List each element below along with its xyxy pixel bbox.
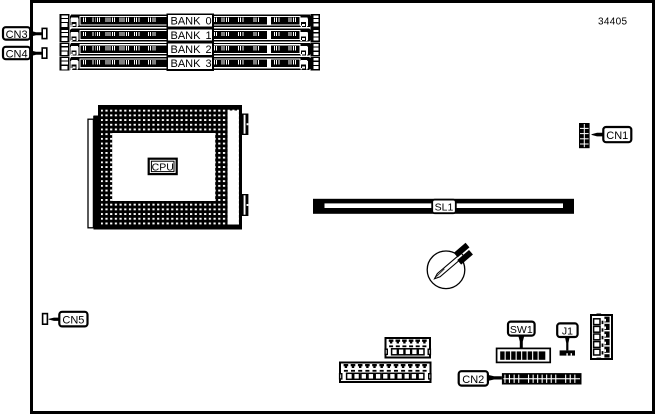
svg-text:1: 1 [206, 30, 212, 42]
svg-text:0: 0 [206, 16, 212, 28]
svg-text:BANK: BANK [171, 58, 202, 70]
svg-text:SW1: SW1 [510, 324, 533, 336]
svg-text:34405: 34405 [598, 17, 627, 28]
svg-text:BANK: BANK [171, 30, 202, 42]
svg-text:CN3: CN3 [6, 29, 28, 41]
svg-text:3: 3 [206, 58, 212, 70]
svg-text:J1: J1 [562, 325, 573, 337]
svg-text:BANK: BANK [171, 44, 202, 56]
svg-text:SL1: SL1 [435, 202, 454, 214]
svg-text:CN1: CN1 [606, 130, 628, 142]
svg-text:CPU: CPU [152, 161, 174, 173]
svg-text:CN4: CN4 [6, 48, 28, 60]
svg-text:CN2: CN2 [462, 374, 484, 386]
svg-text:CN5: CN5 [62, 315, 84, 327]
svg-text:BANK: BANK [171, 16, 202, 28]
svg-text:2: 2 [206, 44, 212, 56]
